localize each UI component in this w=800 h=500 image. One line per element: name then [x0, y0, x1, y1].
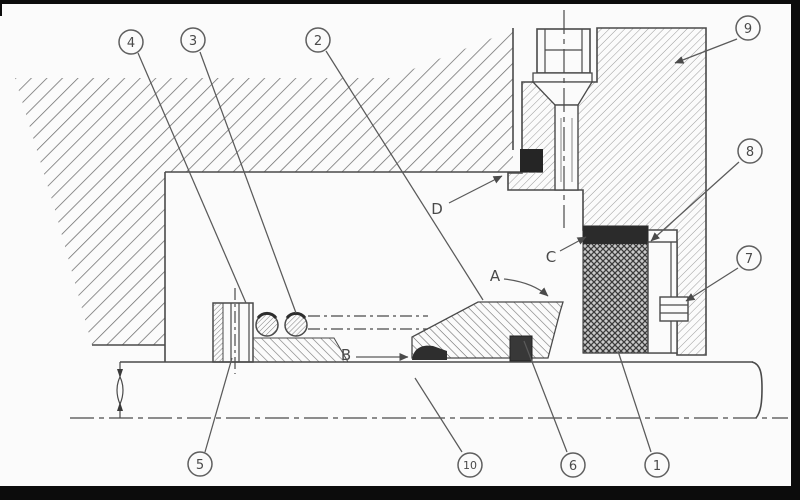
callout-7-label: 7	[745, 252, 753, 267]
callout-2-label: 2	[314, 34, 322, 49]
bolt-shank	[555, 105, 578, 190]
callout-6-label: 6	[569, 459, 577, 474]
frame-top	[0, 0, 800, 4]
technical-drawing-canvas: 4 3 2 9 8 7 5 10 6 1 D C A B	[0, 0, 800, 500]
label-a: A	[490, 267, 501, 285]
frame-left-sliver	[0, 0, 2, 16]
label-c: C	[546, 248, 556, 266]
callout-1-label: 1	[653, 459, 661, 474]
spring-seat-band	[583, 226, 648, 244]
callout-4-label: 4	[127, 36, 135, 51]
label-b: B	[341, 346, 351, 364]
callout-10-label: 10	[463, 459, 477, 472]
label-d: D	[431, 200, 443, 218]
break-lens	[117, 377, 123, 404]
callout-9-label: 9	[744, 22, 752, 37]
o-ring-block	[510, 336, 532, 361]
set-screw	[660, 297, 688, 321]
gasket	[520, 149, 543, 172]
frame-bottom	[0, 486, 800, 500]
callout-8-label: 8	[746, 145, 754, 160]
callout-3-label: 3	[189, 34, 197, 49]
bolt-head-seat	[533, 73, 592, 82]
frame-right	[791, 0, 800, 500]
seal-assembly-drawing: 4 3 2 9 8 7 5 10 6 1 D C A B	[0, 0, 800, 500]
callout-5-label: 5	[196, 458, 204, 473]
shaft-sleeve-section	[253, 338, 348, 362]
